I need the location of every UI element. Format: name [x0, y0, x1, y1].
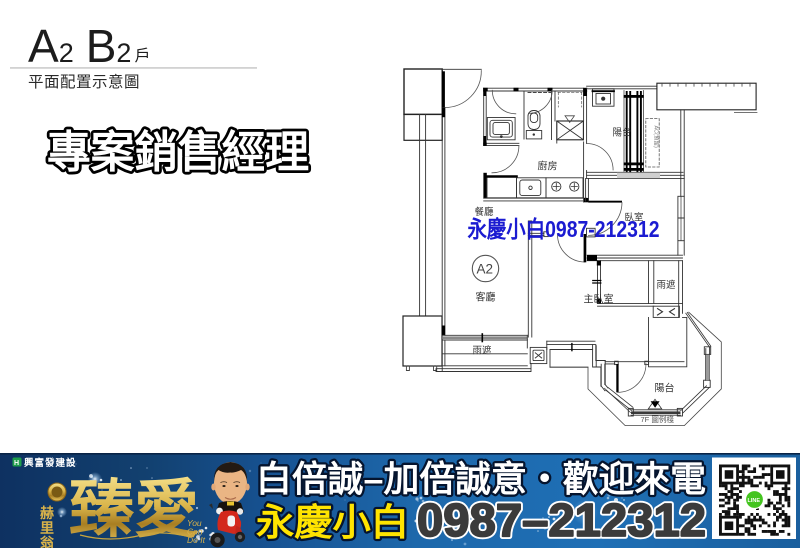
svg-text:平面配置示意圖: 平面配置示意圖	[28, 72, 140, 91]
svg-text:7F 圖例棧: 7F 圖例棧	[641, 414, 675, 424]
svg-text:興富發建設: 興富發建設	[24, 457, 77, 469]
svg-text:客廳: 客廳	[476, 291, 496, 304]
svg-text:AC(預留): AC(預留)	[653, 126, 661, 148]
svg-text:永慶小白0987-212312: 永慶小白0987-212312	[468, 216, 660, 242]
svg-text:翁: 翁	[40, 535, 55, 548]
svg-text:LINE: LINE	[748, 498, 761, 504]
svg-text:陽台: 陽台	[613, 127, 632, 139]
svg-text:Do It: Do It	[187, 535, 206, 545]
svg-text:永慶小白: 永慶小白	[256, 502, 409, 543]
svg-text:0987–212312: 0987–212312	[417, 494, 706, 546]
svg-text:里: 里	[40, 520, 54, 536]
svg-text:白倍誠–加倍誠意・歡迎來電: 白倍誠–加倍誠意・歡迎來電	[256, 459, 706, 499]
svg-text:A2: A2	[477, 262, 494, 277]
svg-text:雨遮: 雨遮	[657, 279, 677, 291]
svg-text:廚房: 廚房	[538, 160, 558, 173]
svg-text:雨遮: 雨遮	[473, 345, 493, 357]
svg-text:主臥室: 主臥室	[584, 293, 614, 306]
svg-text:赫: 赫	[40, 505, 54, 521]
svg-text:陽台: 陽台	[655, 382, 675, 395]
svg-text:專案銷售經理: 專案銷售經理	[47, 128, 309, 177]
svg-text:H: H	[14, 460, 19, 467]
